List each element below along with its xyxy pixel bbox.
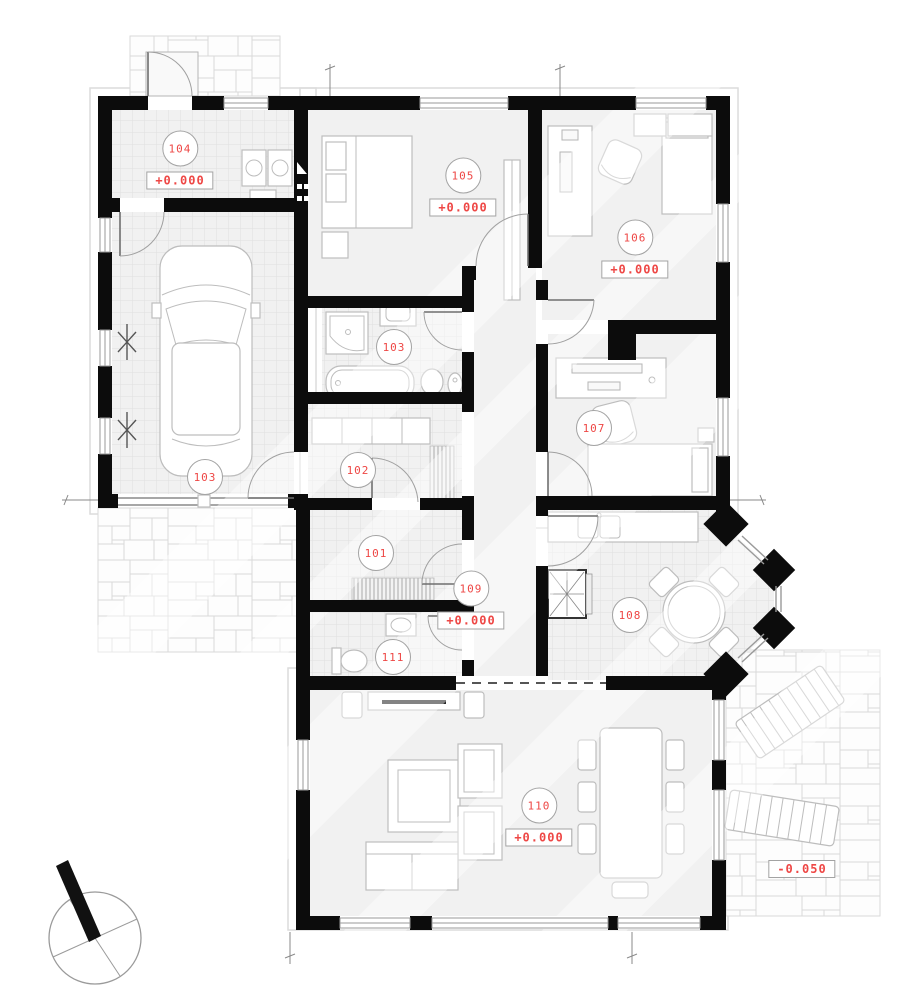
room-label-104: 104 +0.000: [146, 131, 213, 190]
room-label-111: 111: [375, 639, 411, 675]
room-number-badge: 106: [617, 220, 653, 256]
room-number-badge: 103: [376, 329, 412, 365]
glass-door: [714, 700, 724, 760]
window: [618, 918, 700, 928]
elevation-label: +0.000: [429, 199, 496, 217]
floor-plan: 104 +0.000 105 +0.000 106 +0.000 103 107…: [0, 0, 919, 1000]
glass-door: [432, 918, 608, 928]
nightstand-icon: [322, 232, 348, 258]
elevation-label: +0.000: [437, 612, 504, 630]
window: [100, 218, 110, 252]
car-icon: [152, 246, 260, 476]
elevation-label: +0.000: [601, 261, 668, 279]
floor-plan-drawing: [0, 0, 919, 1000]
room-number-badge: 110: [521, 788, 557, 824]
room-label-110: 110 +0.000: [505, 788, 572, 847]
shower-icon: [326, 312, 368, 354]
room-number-badge: 102: [340, 452, 376, 488]
window: [714, 790, 724, 860]
room-label-108: 108: [612, 597, 648, 633]
room-label-102: 102: [340, 452, 376, 488]
room-label-107: 107: [576, 410, 612, 446]
room-number-badge: 101: [358, 535, 394, 571]
room-label-109: 109 +0.000: [437, 571, 504, 630]
toilet-icon: [332, 648, 367, 674]
room-number-badge: 104: [162, 131, 198, 167]
room-number-badge: 111: [375, 639, 411, 675]
elevation-label: -0.050: [768, 860, 835, 878]
room-label-103-bath: 103: [376, 329, 412, 365]
room-number-badge: 107: [576, 410, 612, 446]
window: [636, 98, 706, 108]
room-number-badge: 109: [453, 571, 489, 607]
room-label-106: 106 +0.000: [601, 220, 668, 279]
room-label-103-garage: 103: [187, 459, 223, 495]
room-number-badge: 105: [445, 158, 481, 194]
room-number-badge: 108: [612, 597, 648, 633]
coffee-table-icon: [388, 760, 460, 832]
window: [100, 330, 110, 366]
room-number-badge: 103: [187, 459, 223, 495]
room-label-101: 101: [358, 535, 394, 571]
bed-icon: [322, 136, 412, 228]
window: [718, 204, 728, 262]
elevation-label: +0.000: [146, 172, 213, 190]
terrace-elevation-label: -0.050: [768, 860, 835, 878]
window: [224, 98, 268, 108]
bidet-icon: [448, 373, 462, 395]
room-label-105: 105 +0.000: [429, 158, 496, 217]
elevation-label: +0.000: [505, 829, 572, 847]
window: [718, 398, 728, 456]
window: [420, 98, 508, 108]
window: [298, 740, 308, 790]
window: [100, 418, 110, 454]
window: [340, 918, 410, 928]
